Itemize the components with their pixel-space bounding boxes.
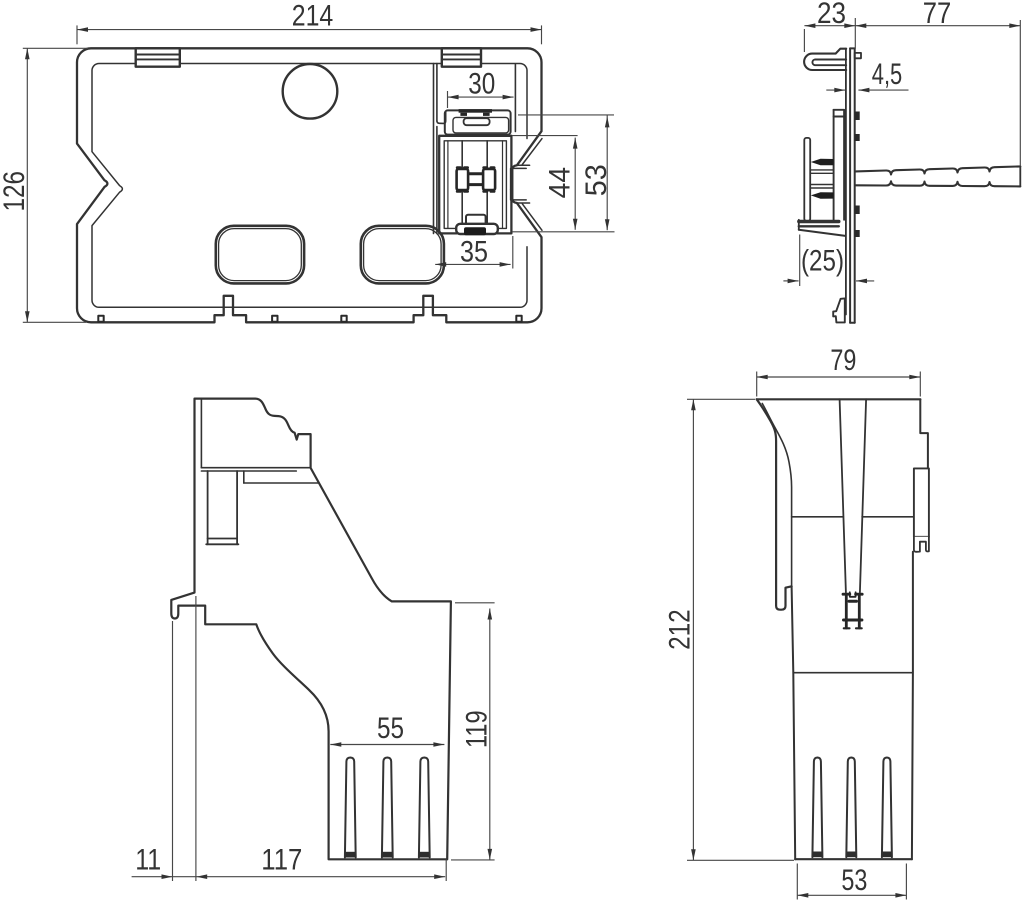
svg-text:53: 53 xyxy=(841,864,867,897)
svg-text:(25): (25) xyxy=(801,245,844,278)
svg-text:23: 23 xyxy=(817,0,846,30)
svg-text:4,5: 4,5 xyxy=(872,58,903,91)
svg-text:55: 55 xyxy=(377,712,404,745)
svg-text:35: 35 xyxy=(460,236,488,269)
svg-text:77: 77 xyxy=(923,0,952,30)
svg-text:11: 11 xyxy=(135,843,161,876)
svg-text:79: 79 xyxy=(830,344,856,377)
svg-text:214: 214 xyxy=(292,0,334,33)
svg-text:117: 117 xyxy=(261,843,302,876)
svg-text:212: 212 xyxy=(664,609,697,650)
svg-text:119: 119 xyxy=(460,710,493,748)
svg-text:53: 53 xyxy=(580,164,613,196)
svg-text:44: 44 xyxy=(544,167,577,199)
svg-text:126: 126 xyxy=(0,171,31,212)
svg-text:30: 30 xyxy=(468,68,495,101)
